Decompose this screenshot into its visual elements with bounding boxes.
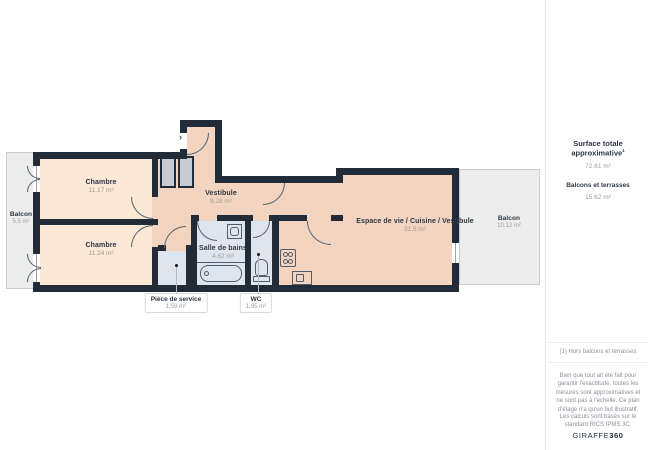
callout-area: 1.95 m² [246, 304, 266, 310]
room-name: Balcon [10, 211, 32, 218]
room-name: Vestibule [205, 190, 237, 197]
room-label-bathroom: Salle de bains 4.62 m² [199, 245, 247, 260]
sidebar-rule [548, 362, 648, 363]
room-area: 11.24 m² [85, 250, 116, 257]
balconies-label: Balcons et terrasses [546, 182, 650, 189]
standard-text: Les calculs sont basés sur le standard R… [552, 413, 644, 430]
service-room-floor [158, 251, 186, 285]
kitchen-sink-basin-icon [296, 274, 304, 282]
callout-wc: WC 1.95 m² [240, 293, 272, 313]
wall-segment [152, 247, 158, 292]
wall-segment [215, 176, 343, 183]
closet-icon [160, 156, 176, 188]
bathtub-tap-icon [204, 271, 209, 276]
wall-segment [272, 215, 279, 292]
wall-segment [33, 152, 40, 166]
room-area: 31.5 m² [356, 226, 474, 233]
sidebar-rule [548, 342, 648, 343]
footnote-marker: 1 [622, 148, 625, 153]
room-area: 9.28 m² [205, 198, 237, 205]
poi-dot [175, 264, 178, 267]
surface-summary: Surface totale approximative1 72.61 m² B… [546, 139, 650, 201]
leader-line [176, 267, 177, 294]
callout-service-room: Pièce de service 1.59 m² [145, 293, 208, 313]
callout-name: WC [246, 296, 266, 303]
room-area: 5.5 m² [10, 219, 32, 225]
toilet-tank-icon [253, 276, 270, 282]
disclaimer-text: Bien que tout ait été fait pour garantir… [552, 372, 644, 414]
wall-segment [191, 215, 197, 292]
poi-dot [257, 253, 260, 256]
summary-sidebar: Surface totale approximative1 72.61 m² B… [546, 0, 650, 450]
entrance-arrow-icon: › [179, 133, 182, 142]
room-label-balcony-right: Balcon 10.12 m² [497, 215, 521, 229]
wall-segment [33, 152, 187, 159]
footnote-text: (1) Hors balcons et terrasses [546, 349, 650, 355]
wall-segment [279, 215, 307, 221]
room-label-vestibule: Vestibule 9.28 m² [205, 190, 237, 205]
room-label-balcony-left: Balcon 5.5 m² [10, 211, 32, 225]
toilet-icon [255, 259, 268, 276]
wall-segment [33, 282, 40, 292]
room-label-bedroom-2: Chambre 11.24 m² [85, 242, 116, 257]
total-surface-label: Surface totale approximative1 [546, 139, 650, 158]
room-label-living: Espace de vie / Cuisine / Vestibule 31.5… [356, 218, 474, 233]
room-label-bedroom-1: Chambre 11.17 m² [85, 179, 116, 194]
closet-icon [178, 156, 194, 188]
balconies-value: 15.62 m² [546, 194, 650, 201]
room-area: 4.62 m² [199, 253, 247, 260]
giraffe360-logo: GIRAFFE360 [546, 431, 650, 440]
wall-segment [215, 120, 222, 183]
total-surface-value: 72.61 m² [546, 163, 650, 170]
wall-segment [36, 219, 158, 225]
room-name: Salle de bains [199, 245, 247, 252]
room-name: Balcon [497, 215, 521, 222]
room-name: Espace de vie / Cuisine / Vestibule [356, 218, 474, 225]
callout-name: Pièce de service [151, 296, 202, 303]
wall-segment [331, 215, 343, 221]
balcony-door-line [455, 243, 456, 263]
wall-segment [152, 156, 158, 197]
room-name: Chambre [85, 179, 116, 186]
washbasin-bowl-icon [230, 227, 239, 236]
room-name: Chambre [85, 242, 116, 249]
wall-segment [180, 149, 187, 159]
callout-area: 1.59 m² [151, 304, 202, 310]
wall-segment [336, 168, 459, 175]
stove-burners-icon [281, 250, 295, 266]
room-area: 10.12 m² [497, 223, 521, 229]
room-area: 11.17 m² [85, 187, 116, 194]
leader-line [258, 256, 259, 294]
